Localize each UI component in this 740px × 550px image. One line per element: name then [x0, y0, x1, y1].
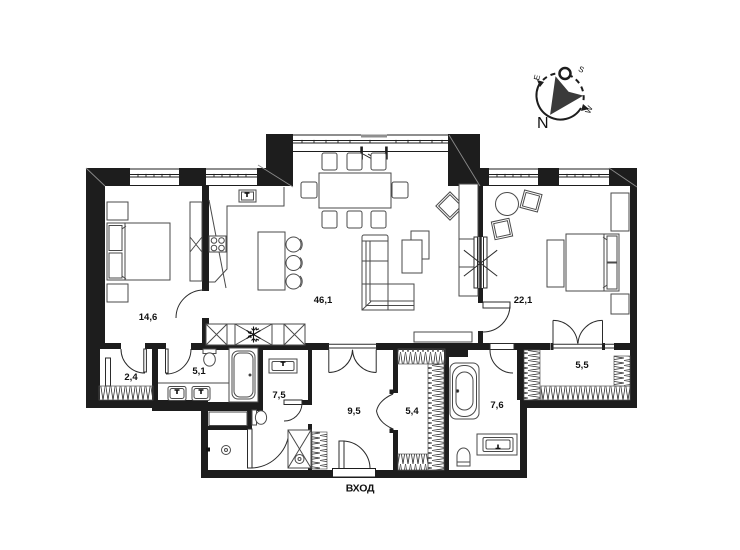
svg-text:7,5: 7,5 [272, 390, 286, 401]
svg-text:5,5: 5,5 [575, 360, 589, 371]
svg-text:7,6: 7,6 [490, 400, 503, 411]
svg-text:22,1: 22,1 [514, 295, 533, 306]
svg-text:9,5: 9,5 [347, 406, 361, 417]
svg-text:5,1: 5,1 [192, 366, 206, 377]
svg-text:N: N [537, 115, 549, 132]
svg-text:46,1: 46,1 [314, 295, 333, 306]
svg-text:2,4: 2,4 [124, 372, 138, 383]
svg-text:ВХОД: ВХОД [346, 483, 375, 495]
svg-text:14,6: 14,6 [139, 312, 158, 323]
svg-text:5,4: 5,4 [405, 406, 419, 417]
